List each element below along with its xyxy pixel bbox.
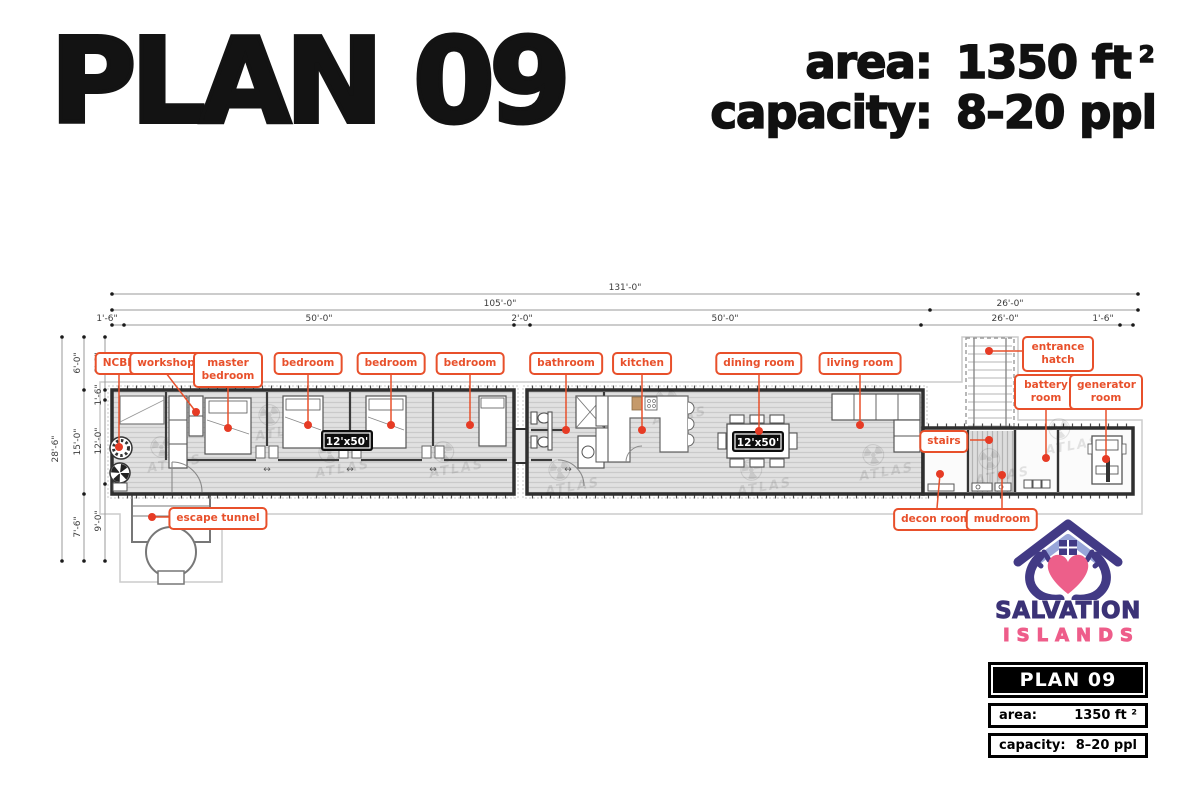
dim-total-width: 131'-0" xyxy=(609,283,642,293)
room-label-dining-room: dining room xyxy=(715,352,802,375)
room-label-escape-tunnel: escape tunnel xyxy=(168,507,267,530)
module-connector xyxy=(514,429,527,463)
dim-left-f: 12'-0" xyxy=(94,427,104,454)
svg-text:↔: ↔ xyxy=(346,465,354,475)
dim-seg-3: 2'-0" xyxy=(511,314,532,324)
room-label-workshop: workshop xyxy=(129,352,203,375)
svg-text:↔: ↔ xyxy=(263,465,271,475)
dim-seg-1: 1'-6" xyxy=(96,314,117,324)
svg-text:12'x50': 12'x50' xyxy=(326,436,368,448)
room-label-generator-room: generator room xyxy=(1069,374,1143,410)
dim-seg-6: 1'-6" xyxy=(1092,314,1113,324)
room-label-mudroom: mudroom xyxy=(966,508,1038,531)
dim-total-height: 28'-6" xyxy=(51,435,61,462)
svg-text:12'x50': 12'x50' xyxy=(737,437,779,449)
room-label-master-bedroom: master bedroom xyxy=(193,352,263,388)
room-label-entrance-hatch: entrance hatch xyxy=(1022,336,1094,372)
room-label-living-room: living room xyxy=(819,352,902,375)
dim-left-g: 9'-0" xyxy=(94,510,104,531)
dim-left-e: 1'-6" xyxy=(94,384,104,405)
logo-text-salvation: SALVATION xyxy=(986,598,1150,624)
dim-left-c: 7'-6" xyxy=(73,516,83,537)
dim-wing-width: 26'-0" xyxy=(996,299,1023,309)
plan-info-area-row: area: 1350 ft ² xyxy=(988,703,1148,728)
dim-seg-4: 50'-0" xyxy=(711,314,738,324)
plan-info-title: PLAN 09 xyxy=(991,665,1145,695)
plan-info-area-label: area: xyxy=(999,708,1037,723)
dim-seg-2: 50'-0" xyxy=(305,314,332,324)
dim-seg-5: 26'-0" xyxy=(991,314,1018,324)
room-label-stairs: stairs xyxy=(919,430,968,453)
plan-info-box: PLAN 09 area: 1350 ft ² capacity: 8–20 p… xyxy=(988,662,1148,758)
module-size-badge-1: 12'x50' xyxy=(321,430,373,451)
room-label-bedroom-3: bedroom xyxy=(436,352,505,375)
plan-info-capacity-value: 8–20 ppl xyxy=(1076,738,1137,753)
dim-left-a: 6'-0" xyxy=(73,352,83,373)
dim-main-width: 105'-0" xyxy=(484,299,517,309)
logo-text-islands: ISLANDS xyxy=(986,625,1150,646)
dim-left-b: 15'-0" xyxy=(73,428,83,455)
plan-info-header: PLAN 09 xyxy=(988,662,1148,698)
room-label-bathroom: bathroom xyxy=(529,352,603,375)
room-label-bedroom-2: bedroom xyxy=(357,352,426,375)
svg-text:↔: ↔ xyxy=(429,465,437,475)
room-label-kitchen: kitchen xyxy=(612,352,672,375)
room-label-bedroom-1: bedroom xyxy=(274,352,343,375)
plan-info-area-value: 1350 ft ² xyxy=(1074,708,1137,723)
plan-info-capacity-row: capacity: 8–20 ppl xyxy=(988,733,1148,758)
plan-info-capacity-label: capacity: xyxy=(999,738,1066,753)
heart-icon xyxy=(1048,555,1089,594)
svg-text:↔: ↔ xyxy=(564,465,572,475)
